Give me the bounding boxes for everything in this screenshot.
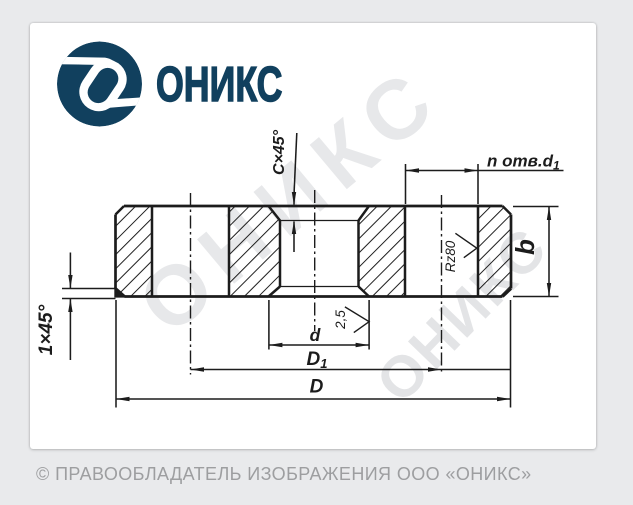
svg-text:D1: D1: [307, 349, 328, 371]
svg-text:ОНИКС: ОНИКС: [156, 57, 283, 112]
svg-text:D: D: [310, 377, 324, 398]
svg-text:n отв.d1: n отв.d1: [487, 152, 560, 173]
svg-text:b: b: [510, 239, 540, 255]
svg-text:d: d: [310, 325, 321, 345]
svg-text:2,5: 2,5: [333, 310, 348, 330]
svg-text:1×45°: 1×45°: [36, 304, 57, 355]
svg-text:Rz80: Rz80: [443, 240, 458, 272]
svg-text:С×45°: С×45°: [271, 129, 288, 175]
